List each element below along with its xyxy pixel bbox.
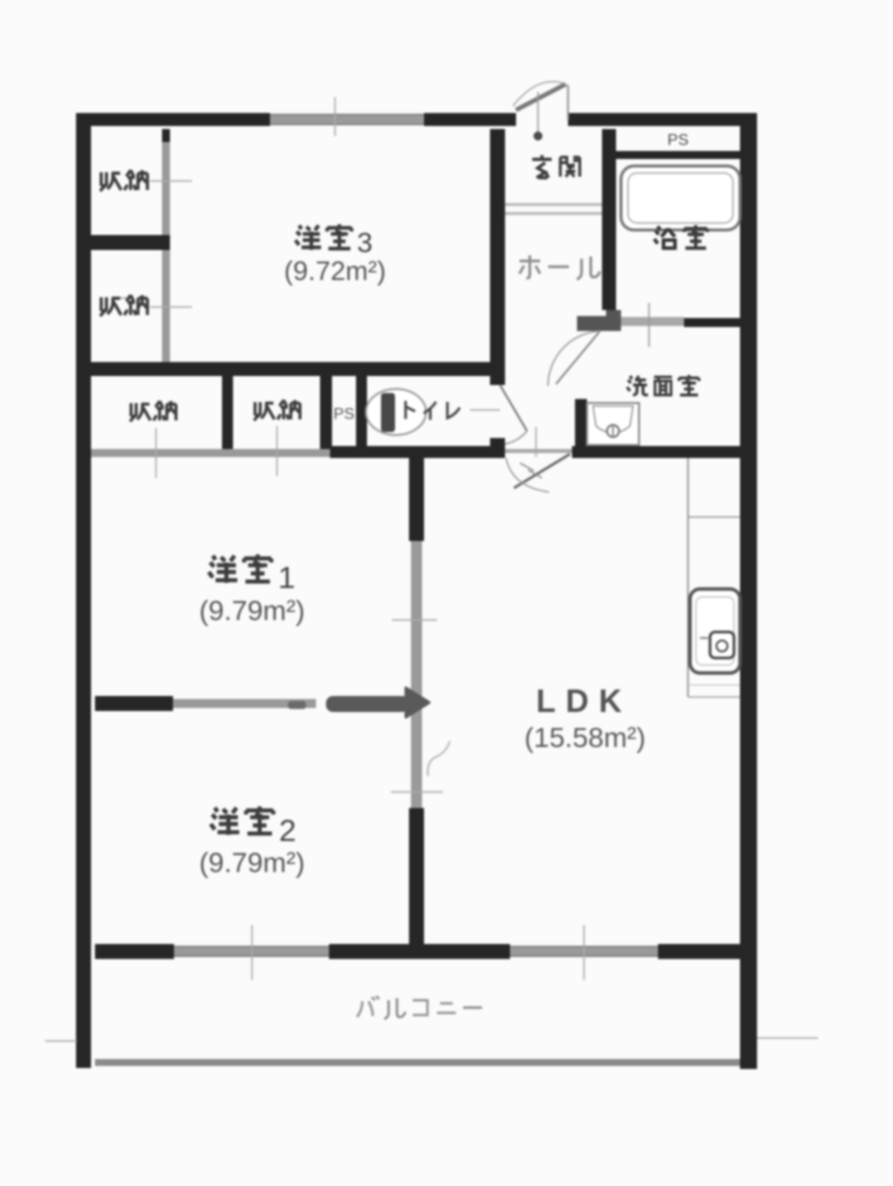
- svg-text:(15.58m²): (15.58m²): [524, 722, 645, 753]
- svg-text:(9.79m²): (9.79m²): [199, 595, 305, 626]
- svg-text:2: 2: [279, 813, 296, 848]
- svg-text:LDK: LDK: [536, 683, 632, 719]
- svg-text:3: 3: [357, 227, 373, 258]
- svg-text:(9.79m²): (9.79m²): [199, 847, 305, 878]
- svg-text:PS: PS: [334, 406, 355, 423]
- svg-text:PS: PS: [667, 132, 688, 149]
- svg-text:(9.72m²): (9.72m²): [284, 256, 386, 286]
- svg-text:1: 1: [278, 560, 295, 595]
